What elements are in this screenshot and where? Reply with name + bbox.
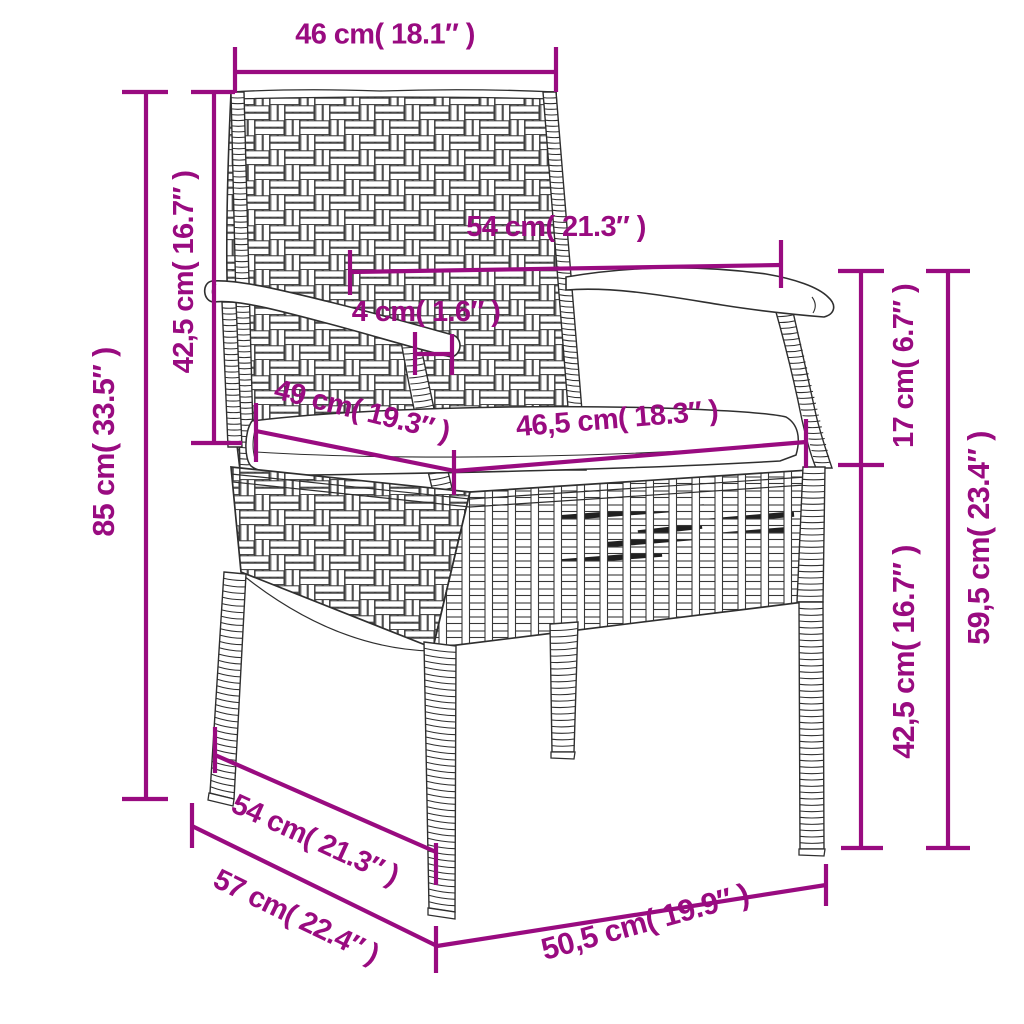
svg-text:85 cm( 33.5″ ): 85 cm( 33.5″ ): [87, 347, 121, 536]
svg-text:42,5 cm( 16.7″ ): 42,5 cm( 16.7″ ): [168, 171, 200, 374]
svg-text:17 cm( 6.7″ ): 17 cm( 6.7″ ): [888, 284, 920, 448]
svg-text:46 cm( 18.1″ ): 46 cm( 18.1″ ): [295, 19, 475, 51]
svg-text:59,5 cm( 23.4″ ): 59,5 cm( 23.4″ ): [962, 431, 996, 645]
svg-text:4 cm( 1.6″ ): 4 cm( 1.6″ ): [352, 296, 501, 328]
svg-text:54 cm( 21.3″ ): 54 cm( 21.3″ ): [466, 211, 646, 243]
svg-text:42,5 cm( 16.7″ ): 42,5 cm( 16.7″ ): [887, 545, 921, 759]
